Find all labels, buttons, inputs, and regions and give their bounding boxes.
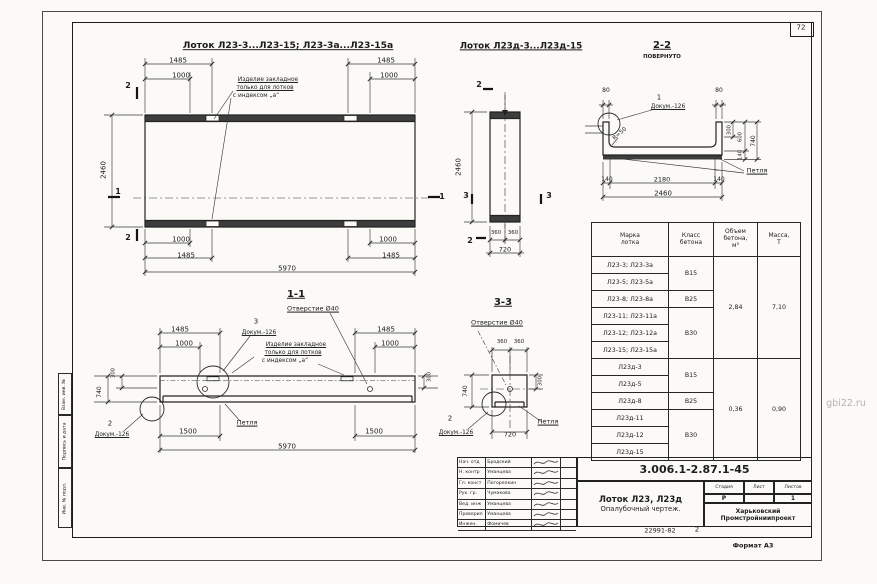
drawing-sheet: Лоток Л23-3...Л23-15; Л23-3а...Л23-15аЛо… bbox=[0, 0, 877, 584]
signature-mark bbox=[533, 468, 559, 477]
signature-row: Инжен.Фомичев bbox=[458, 520, 576, 530]
plan-dim: 2460 bbox=[100, 161, 107, 179]
section-mark: 2 bbox=[476, 81, 482, 89]
sheets-label-cell: Листов bbox=[774, 481, 812, 494]
materials-table-body: Л23-3; Л23-3аВ152,847,10Л23-5; Л23-5аЛ23… bbox=[592, 257, 801, 461]
signature-mark bbox=[533, 479, 559, 488]
doc-code: 22991-82 bbox=[644, 528, 675, 535]
product-name: Лоток Л23, Л23д bbox=[599, 495, 682, 505]
callout-number: 1 bbox=[657, 94, 661, 101]
signature-role: Проверил bbox=[458, 510, 486, 519]
callout-doc: Докум.-126 bbox=[95, 432, 129, 438]
loop-label: Петля bbox=[747, 168, 768, 175]
class-cell: В25 bbox=[669, 393, 714, 410]
sec22-dim: 300 bbox=[727, 125, 732, 135]
class-cell: В30 bbox=[669, 410, 714, 461]
sec11-dim: 740 bbox=[97, 386, 103, 397]
table-header-cell: Масса, Т bbox=[758, 223, 801, 257]
mark-cell: Л23д-12 bbox=[592, 427, 669, 444]
mark-cell: Л23д-11 bbox=[592, 410, 669, 427]
page-number: 72 bbox=[797, 24, 806, 31]
callout-number: 2 bbox=[108, 420, 112, 427]
signature-mark bbox=[533, 510, 559, 519]
signature-role: Нач. отд bbox=[458, 458, 486, 467]
signature-row: Н. контрУманцева bbox=[458, 468, 576, 478]
section-mark: 2 bbox=[125, 234, 131, 242]
mark-cell: Л23-15; Л23-15а bbox=[592, 342, 669, 359]
signature-row: Гл. констПогорелкин bbox=[458, 479, 576, 489]
signature-name: Фомичев bbox=[486, 520, 532, 529]
stamp-inv-podl-label: Инв. № подл. bbox=[63, 482, 68, 514]
mark-cell: Л23д-5 bbox=[592, 376, 669, 393]
signature-name: Погорелкин bbox=[486, 479, 532, 488]
mark-cell: Л23д-8 bbox=[592, 393, 669, 410]
watermark: gbi22.ru bbox=[826, 399, 866, 409]
section-mark: 2 bbox=[125, 82, 131, 90]
sheet-value-cell bbox=[744, 494, 774, 503]
signature-row: Рук. гр.Чумакова bbox=[458, 489, 576, 499]
org-line2: Промстройниипроект bbox=[721, 515, 796, 522]
flange-bands bbox=[145, 112, 722, 227]
mark-cell: Л23-8; Л23-8а bbox=[592, 291, 669, 308]
view2-title: Лоток Л23д-3...Л23д-15 bbox=[460, 42, 583, 51]
plan-dim: 1000 bbox=[380, 72, 398, 79]
sec11-dim: 300 bbox=[427, 372, 432, 382]
sec22-dim: 740 bbox=[751, 135, 757, 146]
section-mark: 3 bbox=[463, 192, 469, 200]
signature-name: Уманцева bbox=[486, 500, 532, 509]
table-header-cell: Объем бетона, м³ bbox=[714, 223, 758, 257]
document-code-cell: 3.006.1-2.87.1-45 bbox=[577, 457, 812, 481]
mark-cell: Л23-12; Л23-12а bbox=[592, 325, 669, 342]
callout-number: 2 bbox=[448, 415, 452, 422]
signature-table: Нач. отдБродскийН. контрУманцеваГл. конс… bbox=[457, 457, 577, 527]
embed-note-line1: Изделие закладное bbox=[266, 342, 326, 348]
section-2-2-title: 2-2 bbox=[653, 41, 671, 52]
embed-note-line3: с индексом „а“ bbox=[233, 93, 279, 99]
signature-row: Нач. отдБродский bbox=[458, 458, 576, 468]
section-mark: 1 bbox=[115, 188, 121, 196]
sec11-dim: 1485 bbox=[377, 326, 395, 333]
sec11-dim: 300 bbox=[111, 368, 116, 378]
section-mark: 3 bbox=[546, 192, 552, 200]
sec22-dim: 140 bbox=[601, 177, 612, 183]
signature-name: Уманцева bbox=[486, 468, 532, 477]
stamp-vzam-inv-label: Взам. инв. № bbox=[63, 378, 68, 409]
section-2-2-sub: ПОВЕРНУТО bbox=[643, 55, 681, 61]
view1-title: Лоток Л23-3...Л23-15; Л23-3а...Л23-15а bbox=[183, 41, 394, 51]
format-label: Формат А3 bbox=[733, 543, 774, 550]
signature-role: Вед. инж bbox=[458, 500, 486, 509]
sec22-dim: 80 bbox=[715, 88, 723, 94]
signature-mark-cell bbox=[532, 520, 561, 529]
sec22-dim: 80 bbox=[602, 88, 610, 94]
signature-mark-cell bbox=[532, 489, 561, 498]
loop-label: Петля bbox=[237, 420, 258, 427]
mass-cell: 7,10 bbox=[758, 257, 801, 359]
signature-mark-cell bbox=[532, 458, 561, 467]
mark-cell: Л23-3; Л23-3а bbox=[592, 257, 669, 274]
stamp-podpis-data: Подпись и дата bbox=[58, 415, 72, 468]
signature-role: Гл. конст bbox=[458, 479, 486, 488]
signature-mark-cell bbox=[532, 468, 561, 477]
sec11-dim: 1500 bbox=[179, 428, 197, 435]
section-mark: 2 bbox=[467, 237, 473, 245]
mark-cell: Л23-11; Л23-11а bbox=[592, 308, 669, 325]
plan-dim: 1000 bbox=[379, 236, 397, 243]
signature-mark bbox=[533, 458, 559, 467]
section-cut-marks bbox=[108, 87, 541, 241]
sec11-dim: 1000 bbox=[175, 340, 193, 347]
sec11-dim: 5970 bbox=[278, 443, 296, 450]
table-header-cell: Марка лотка bbox=[592, 223, 669, 257]
hole-label: Отверстие Ø40 bbox=[471, 320, 523, 327]
table-row: Л23-3; Л23-3аВ152,847,10 bbox=[592, 257, 801, 274]
signature-date-cell bbox=[561, 500, 576, 509]
plan-dim: 1485 bbox=[382, 252, 400, 259]
mid-dim: 360 bbox=[491, 231, 501, 237]
sec22-dim: 140 bbox=[713, 177, 724, 183]
embed-note-line2: только для лотков bbox=[264, 350, 321, 356]
sec33-dim: 720 bbox=[504, 432, 516, 439]
signature-mark-cell bbox=[532, 500, 561, 509]
organization-cell: Харьковский Промстройниипроект bbox=[704, 503, 812, 527]
sec11-dim: 1485 bbox=[171, 326, 189, 333]
sec33-dim: 360 bbox=[514, 340, 524, 346]
plan-dim: 1485 bbox=[169, 57, 187, 64]
sec33-dim: 300 bbox=[538, 376, 543, 386]
sec22-dim: 140 bbox=[738, 150, 743, 160]
class-cell: В15 bbox=[669, 359, 714, 393]
signature-role: Инжен. bbox=[458, 520, 486, 529]
signature-role: Рук. гр. bbox=[458, 489, 486, 498]
section-1-1-title: 1-1 bbox=[287, 290, 305, 301]
plan-dim: 1485 bbox=[377, 57, 395, 64]
stamp-vzam-inv: Взам. инв. № bbox=[58, 373, 72, 415]
embed-note-line3: с индексом „а“ bbox=[262, 358, 308, 364]
sec33-dim: 740 bbox=[463, 385, 469, 396]
materials-table-header: Марка лоткаКласс бетонаОбъем бетона, м³М… bbox=[592, 223, 801, 257]
stage-label-cell: Стадия bbox=[704, 481, 744, 494]
class-cell: В15 bbox=[669, 257, 714, 291]
class-cell: В30 bbox=[669, 308, 714, 359]
signature-mark bbox=[533, 489, 559, 498]
materials-table: Марка лоткаКласс бетонаОбъем бетона, м³М… bbox=[591, 222, 801, 461]
sheet-label-cell: Лист bbox=[744, 481, 774, 494]
embed-note-line2: только для лотков bbox=[236, 85, 293, 91]
mark-cell: Л23-5; Л23-5а bbox=[592, 274, 669, 291]
signature-mark bbox=[533, 500, 559, 509]
callout-circles bbox=[140, 113, 620, 421]
mid-dim: 2460 bbox=[455, 158, 462, 176]
sec22-dim: 2180 bbox=[654, 177, 671, 184]
signature-date-cell bbox=[561, 458, 576, 467]
signature-name: Чумакова bbox=[486, 489, 532, 498]
mid-dim: 360 bbox=[508, 231, 518, 237]
sec11-dim: 1000 bbox=[381, 340, 399, 347]
stamp-podpis-data-label: Подпись и дата bbox=[63, 422, 68, 460]
doc-type: Опалубочный чертеж. bbox=[600, 505, 680, 513]
signature-mark bbox=[533, 520, 559, 529]
signature-row: Вед. инжУманцева bbox=[458, 500, 576, 510]
callout-doc: Докум.-126 bbox=[651, 104, 685, 110]
product-name-cell: Лоток Л23, Л23д Опалубочный чертеж. bbox=[577, 481, 704, 527]
mark-cell: Л23д-3 bbox=[592, 359, 669, 376]
hole-label: Отверстие Ø40 bbox=[287, 306, 339, 313]
table-row: Л23д-3В150,360,90 bbox=[592, 359, 801, 376]
org-line1: Харьковский bbox=[736, 508, 781, 515]
centerlines bbox=[133, 92, 544, 428]
volume-cell: 0,36 bbox=[714, 359, 758, 461]
signature-date-cell bbox=[561, 520, 576, 529]
plan-dim: 1000 bbox=[172, 236, 190, 243]
callout-number: 3 bbox=[254, 318, 258, 325]
sheets-value-cell: 1 bbox=[774, 494, 812, 503]
signature-date-cell bbox=[561, 489, 576, 498]
sec33-dim: 360 bbox=[497, 340, 507, 346]
sec22-dim: 2460 bbox=[654, 190, 672, 197]
section-3-3-title: 3-3 bbox=[494, 298, 512, 309]
section-mark: 1 bbox=[439, 193, 445, 201]
plan-dim: 1485 bbox=[177, 252, 195, 259]
sec22-dim: 600 bbox=[738, 132, 743, 142]
callout-doc: Докум.-126 bbox=[242, 330, 276, 336]
signature-role: Н. контр bbox=[458, 468, 486, 477]
signature-mark-cell bbox=[532, 479, 561, 488]
volume-cell: 2,84 bbox=[714, 257, 758, 359]
signature-mark-cell bbox=[532, 510, 561, 519]
signature-date-cell bbox=[561, 468, 576, 477]
sec11-dim: 1500 bbox=[365, 428, 383, 435]
stamp-inv-podl: Инв. № подл. bbox=[58, 468, 72, 528]
signature-name: Бродский bbox=[486, 458, 532, 467]
embed-note-line1: Изделие закладное bbox=[238, 77, 298, 83]
plan-dim: 5970 bbox=[278, 265, 296, 272]
plan-dim: 1000 bbox=[172, 72, 190, 79]
doc-code-extra: 2 bbox=[695, 526, 699, 533]
mid-dim: 720 bbox=[499, 247, 511, 254]
callout-doc: Докум.-126 bbox=[439, 430, 473, 436]
signature-name: Уманцева bbox=[486, 510, 532, 519]
mass-cell: 0,90 bbox=[758, 359, 801, 461]
stage-value-cell: Р bbox=[704, 494, 744, 503]
signature-row: ПроверилУманцева bbox=[458, 510, 576, 520]
signature-date-cell bbox=[561, 510, 576, 519]
class-cell: В25 bbox=[669, 291, 714, 308]
loop-label: Петля bbox=[538, 419, 559, 426]
table-header-cell: Класс бетона bbox=[669, 223, 714, 257]
signature-date-cell bbox=[561, 479, 576, 488]
